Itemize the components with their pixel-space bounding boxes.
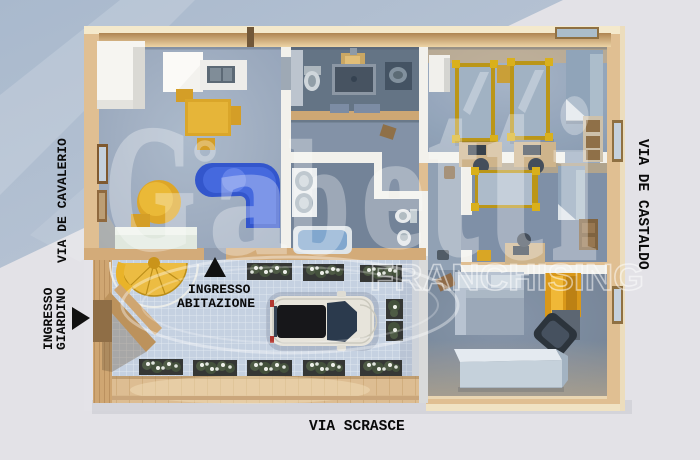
svg-text:e: e [362,99,424,282]
svg-text:VIA SCRASCE: VIA SCRASCE [309,419,405,435]
svg-text:FRANCHISING: FRANCHISING [370,257,644,298]
svg-text:G: G [105,89,195,287]
svg-text:b: b [289,109,349,287]
svg-text:VIA DE CASTALDO: VIA DE CASTALDO [634,139,650,270]
svg-text:ABITAZIONE: ABITAZIONE [177,296,255,311]
svg-text:a: a [210,109,287,287]
svg-text:GIARDINO: GIARDINO [54,287,69,350]
svg-text:VIA DE CAVALERIO: VIA DE CAVALERIO [55,138,70,263]
